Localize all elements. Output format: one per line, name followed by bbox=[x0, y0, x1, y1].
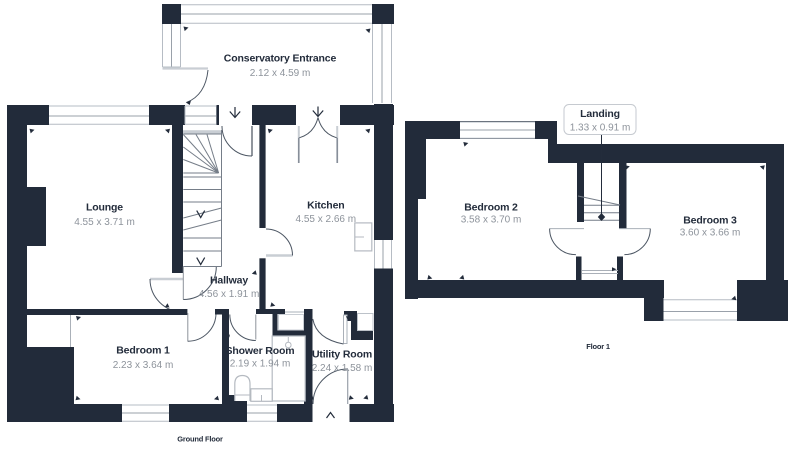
svg-text:Landing: Landing bbox=[580, 108, 620, 120]
svg-text:4.56 x 1.91 m: 4.56 x 1.91 m bbox=[199, 289, 260, 300]
svg-text:4.55 x 3.71 m: 4.55 x 3.71 m bbox=[74, 217, 135, 228]
svg-text:Kitchen: Kitchen bbox=[307, 200, 344, 212]
svg-text:Floor 1: Floor 1 bbox=[586, 342, 610, 351]
svg-text:Bedroom 3: Bedroom 3 bbox=[683, 215, 737, 227]
svg-text:3.58 x 3.70 m: 3.58 x 3.70 m bbox=[461, 215, 522, 226]
svg-text:2.12 x 4.59 m: 2.12 x 4.59 m bbox=[250, 68, 311, 79]
svg-text:1.33 x 0.91 m: 1.33 x 0.91 m bbox=[570, 122, 631, 133]
svg-text:Bedroom 2: Bedroom 2 bbox=[464, 202, 518, 214]
svg-text:Utility Room: Utility Room bbox=[312, 349, 372, 361]
svg-text:Bedroom 1: Bedroom 1 bbox=[116, 345, 170, 357]
svg-text:Conservatory Entrance: Conservatory Entrance bbox=[224, 53, 337, 65]
svg-text:Ground Floor: Ground Floor bbox=[177, 435, 223, 444]
svg-text:Lounge: Lounge bbox=[86, 202, 123, 214]
svg-text:Hallway: Hallway bbox=[210, 275, 248, 287]
svg-text:2.24 x 1.58 m: 2.24 x 1.58 m bbox=[312, 363, 373, 374]
svg-text:3.60 x 3.66 m: 3.60 x 3.66 m bbox=[680, 228, 741, 239]
svg-text:4.55 x 2.66 m: 4.55 x 2.66 m bbox=[296, 214, 357, 225]
svg-text:Shower Room: Shower Room bbox=[226, 345, 295, 357]
svg-text:2.23 x 3.64 m: 2.23 x 3.64 m bbox=[113, 360, 174, 371]
svg-text:2.19 x 1.94 m: 2.19 x 1.94 m bbox=[230, 359, 291, 370]
